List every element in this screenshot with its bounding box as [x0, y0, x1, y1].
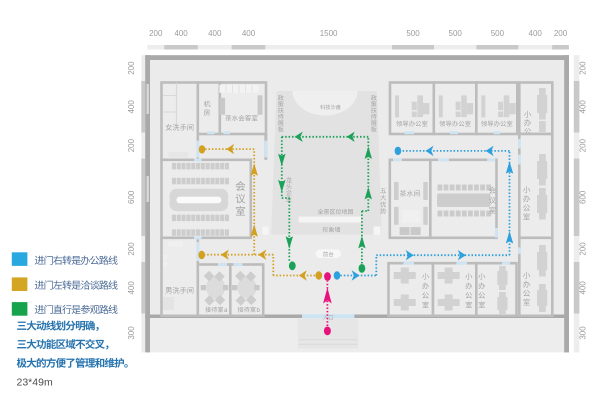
svg-text:200: 200	[579, 242, 588, 256]
svg-text:200: 200	[127, 242, 136, 256]
svg-text:b: b	[257, 307, 261, 314]
svg-text:200: 200	[554, 29, 568, 38]
svg-text:400: 400	[242, 29, 256, 38]
svg-text:400: 400	[579, 281, 588, 295]
svg-text:600: 600	[127, 190, 136, 204]
svg-text:300: 300	[579, 326, 588, 340]
svg-text:400: 400	[208, 29, 222, 38]
svg-text:200: 200	[149, 29, 163, 38]
svg-text:600: 600	[579, 190, 588, 204]
svg-text:500: 500	[406, 29, 420, 38]
svg-text:500: 500	[449, 29, 463, 38]
svg-text:1500: 1500	[320, 29, 338, 38]
svg-text:200: 200	[579, 138, 588, 152]
svg-text:200: 200	[579, 61, 588, 75]
svg-text:400: 400	[127, 100, 136, 114]
svg-text:500: 500	[491, 29, 505, 38]
svg-text:400: 400	[579, 100, 588, 114]
svg-text:400: 400	[174, 29, 188, 38]
svg-text:200: 200	[127, 61, 136, 75]
svg-text:200: 200	[127, 138, 136, 152]
svg-text:a: a	[224, 307, 228, 314]
svg-text:400: 400	[529, 29, 543, 38]
svg-text:23*49m: 23*49m	[17, 376, 53, 388]
svg-text:300: 300	[127, 326, 136, 340]
svg-text:400: 400	[127, 281, 136, 295]
